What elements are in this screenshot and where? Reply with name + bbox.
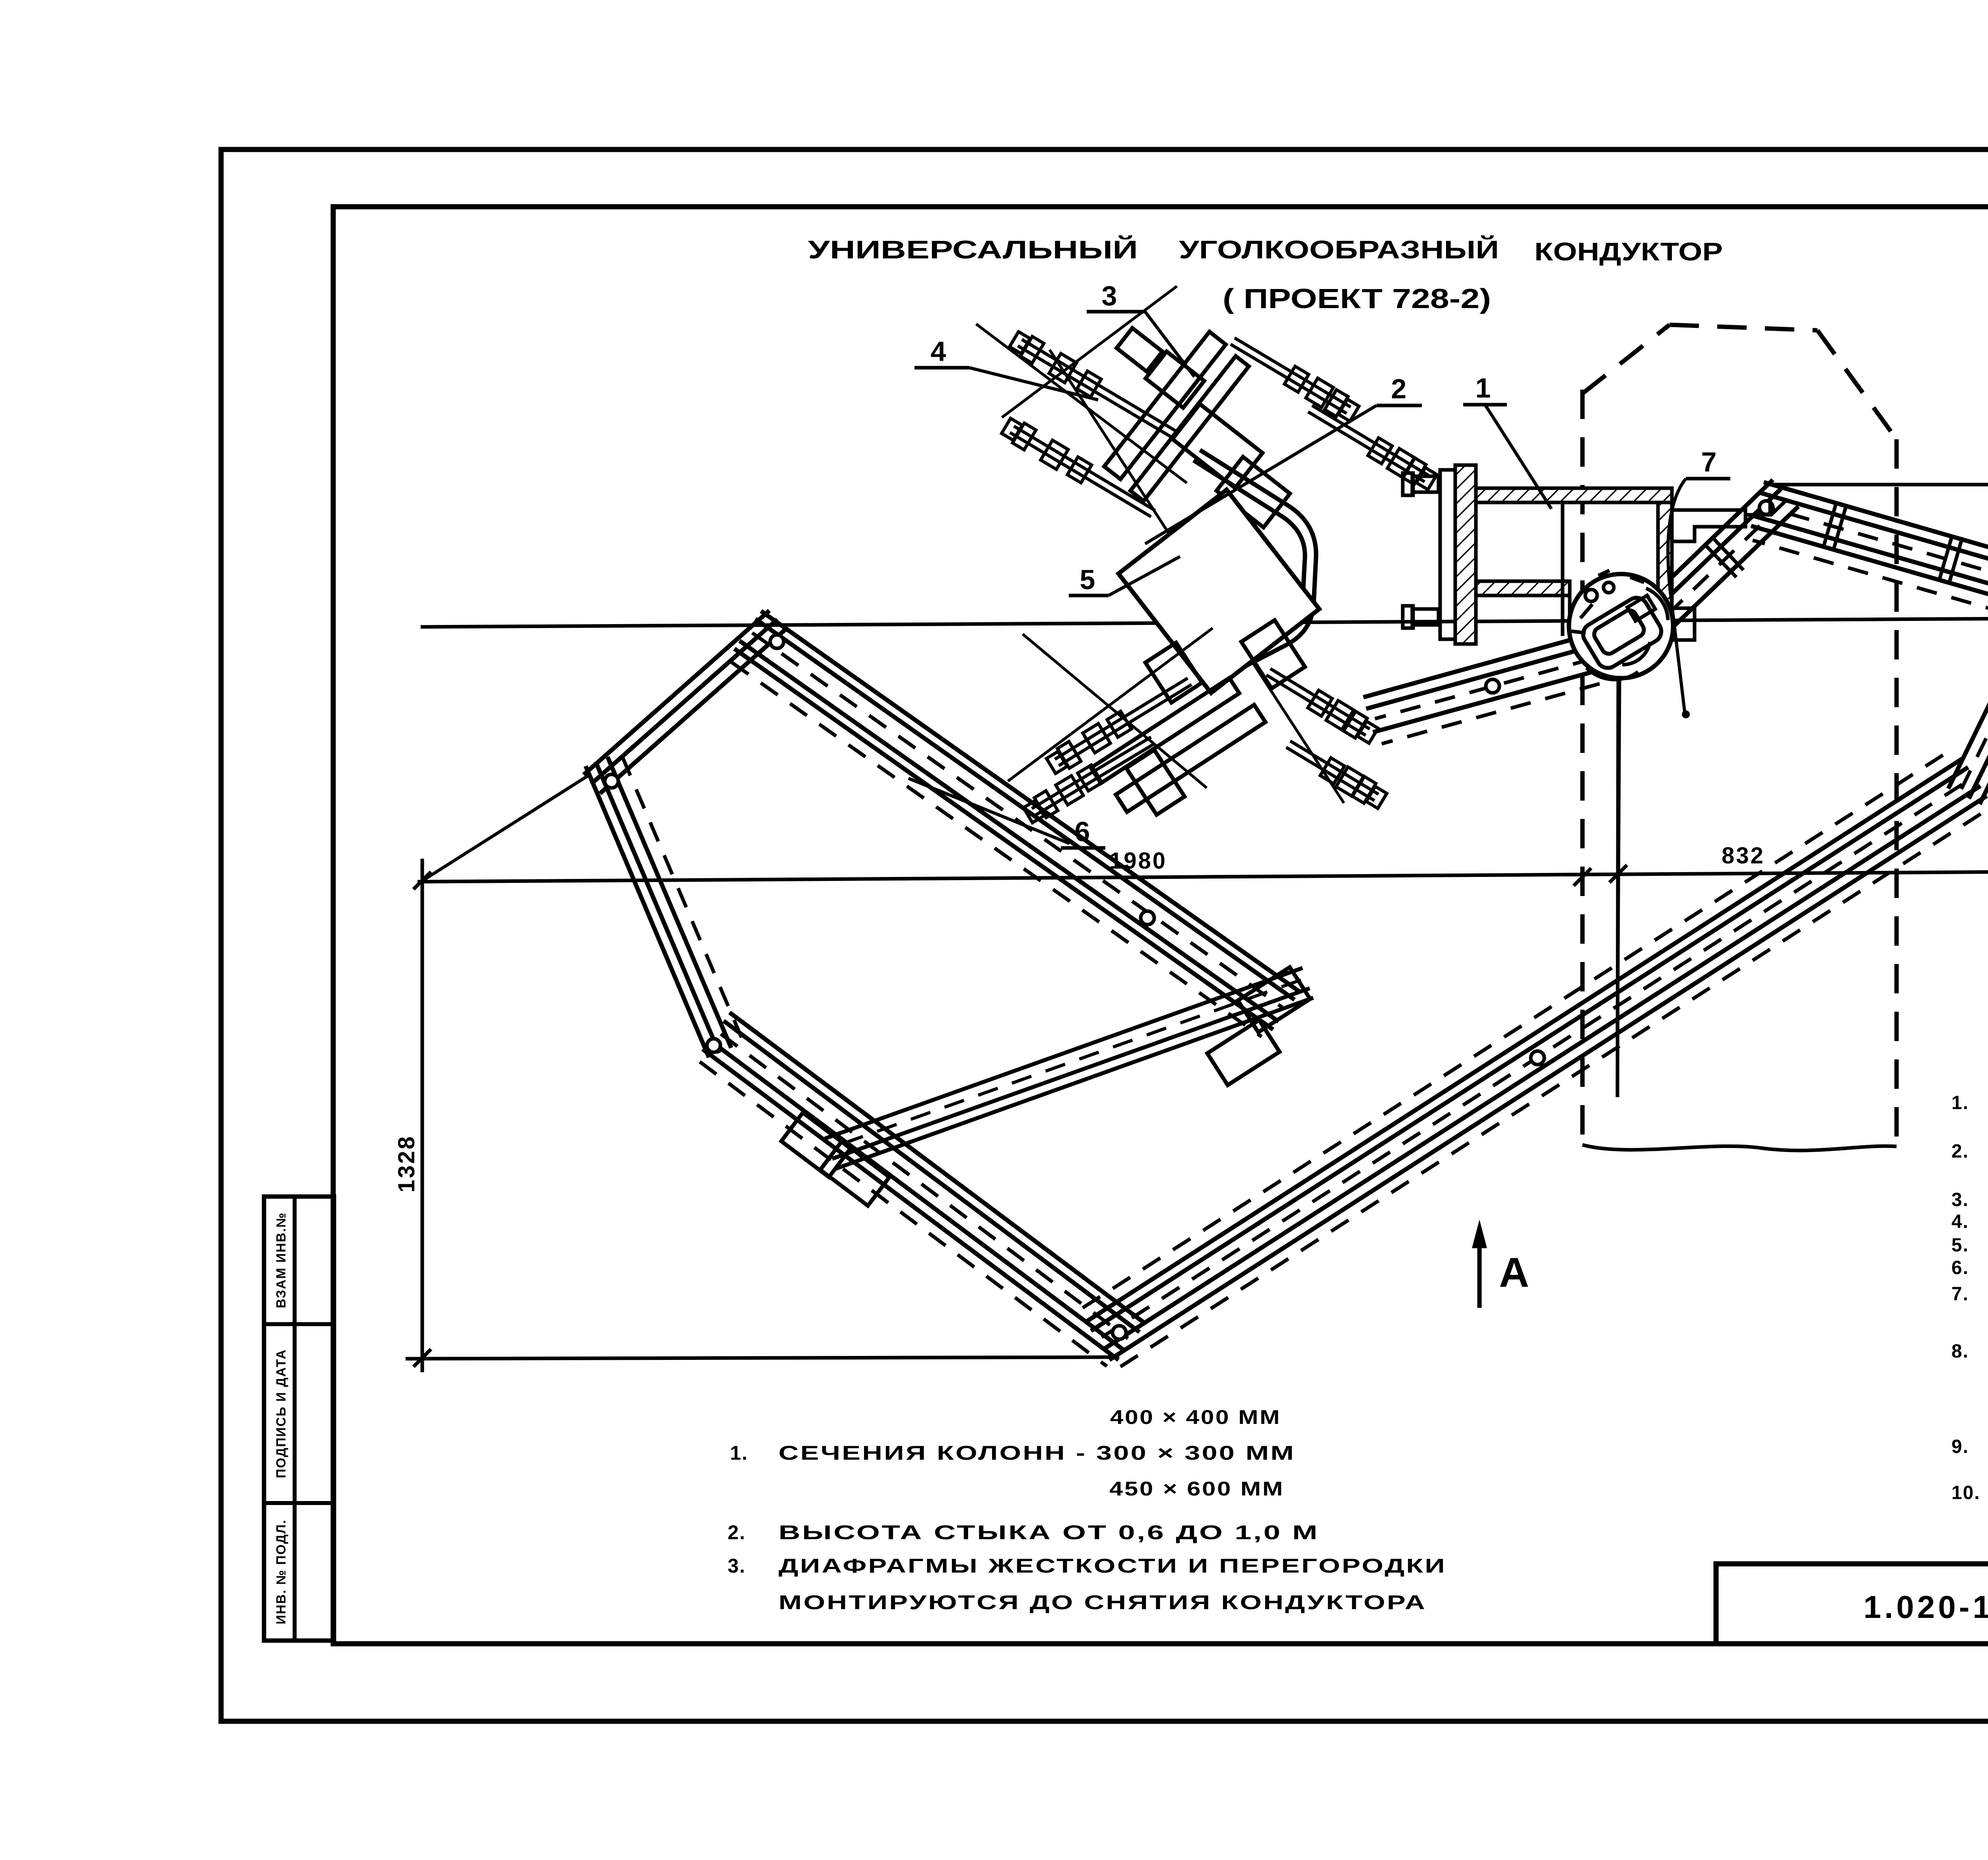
svg-text:9.: 9. bbox=[1951, 1436, 1969, 1457]
svg-text:КОНДУКТОР: КОНДУКТОР bbox=[1534, 237, 1723, 266]
svg-text:7.: 7. bbox=[1951, 1284, 1969, 1305]
svg-text:2.: 2. bbox=[1951, 1141, 1969, 1162]
svg-text:1.: 1. bbox=[730, 1442, 748, 1464]
svg-text:450 × 600 ММ: 450 × 600 ММ bbox=[1109, 1478, 1284, 1500]
svg-text:1.: 1. bbox=[1951, 1092, 1969, 1113]
svg-text:2: 2 bbox=[1391, 373, 1407, 404]
svg-text:( ПРОЕКТ 728-2): ( ПРОЕКТ 728-2) bbox=[1223, 283, 1491, 314]
svg-text:3.: 3. bbox=[1951, 1189, 1969, 1210]
svg-text:СЕЧЕНИЯ КОЛОНН - 300 × 300 М: СЕЧЕНИЯ КОЛОНН - 300 × 300 ММ bbox=[779, 1442, 1295, 1464]
svg-text:1328: 1328 bbox=[394, 1135, 419, 1193]
svg-text:1: 1 bbox=[1475, 372, 1491, 403]
svg-text:МОНТИРУЮТСЯ ДО СНЯТИЯ КОНДУ: МОНТИРУЮТСЯ ДО СНЯТИЯ КОНДУКТОРА bbox=[779, 1591, 1427, 1614]
svg-text:5.: 5. bbox=[1951, 1235, 1969, 1256]
svg-text:8.: 8. bbox=[1951, 1341, 1969, 1362]
svg-text:10.: 10. bbox=[1951, 1482, 1980, 1503]
svg-text:6: 6 bbox=[1075, 816, 1090, 847]
svg-text:400 × 400 ММ: 400 × 400 ММ bbox=[1110, 1406, 1281, 1428]
svg-text:ИНВ. № ПОДЛ.: ИНВ. № ПОДЛ. bbox=[274, 1519, 288, 1624]
svg-text:А: А bbox=[1499, 1249, 1529, 1296]
svg-text:4: 4 bbox=[931, 336, 946, 367]
svg-text:7: 7 bbox=[1701, 446, 1717, 477]
svg-text:ДИАФРАГМЫ ЖЕСТКОСТИ И ПЕРЕГОРО: ДИАФРАГМЫ ЖЕСТКОСТИ И ПЕРЕГОРОДКИ bbox=[779, 1555, 1446, 1577]
svg-text:ВЗАМ ИНВ.№: ВЗАМ ИНВ.№ bbox=[274, 1212, 288, 1308]
svg-text:ПОДПИСЬ И ДАТА: ПОДПИСЬ И ДАТА bbox=[274, 1349, 288, 1478]
svg-text:УНИВЕРСАЛЬНЫЙ: УНИВЕРСАЛЬНЫЙ bbox=[808, 235, 1138, 264]
svg-text:4.: 4. bbox=[1951, 1211, 1969, 1232]
svg-text:6.: 6. bbox=[1951, 1257, 1969, 1278]
svg-text:2.: 2. bbox=[728, 1521, 746, 1544]
svg-text:1.020-1/87. 0-8-К8: 1.020-1/87. 0-8-К8 bbox=[1864, 1589, 1988, 1625]
svg-text:ВЫСОТА СТЫКА ОТ 0,6 ДО 1,0 М: ВЫСОТА СТЫКА ОТ 0,6 ДО 1,0 М bbox=[779, 1521, 1319, 1544]
svg-text:3: 3 bbox=[1102, 280, 1117, 311]
svg-text:3.: 3. bbox=[728, 1555, 746, 1577]
svg-text:УГОЛКООБРАЗНЫЙ: УГОЛКООБРАЗНЫЙ bbox=[1179, 235, 1499, 264]
svg-text:5: 5 bbox=[1080, 564, 1095, 595]
svg-text:832: 832 bbox=[1722, 843, 1765, 869]
